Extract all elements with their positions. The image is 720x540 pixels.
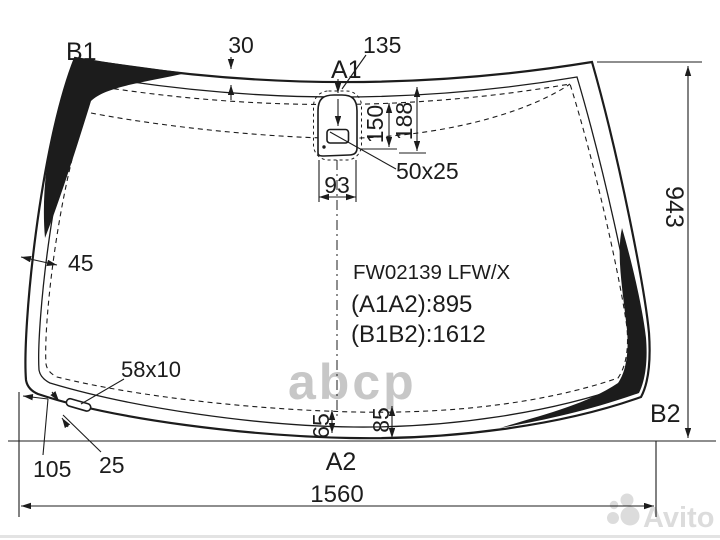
mount-dot [322, 145, 325, 148]
bottom-artifact-line [0, 535, 720, 538]
dim-50x25: 50x25 [396, 158, 459, 184]
dim-30: 30 [228, 32, 254, 58]
distance-a1a2: (A1A2):895 [351, 291, 472, 318]
dim-943: 943 [660, 186, 688, 228]
dim-65: 65 [308, 413, 334, 439]
dim-85: 85 [368, 407, 394, 433]
dim-1560: 1560 [310, 481, 363, 508]
dim-58x10: 58x10 [121, 357, 181, 382]
dim-150: 150 [362, 105, 388, 143]
dim-188: 188 [391, 102, 417, 140]
avito-watermark-text: Avito [643, 502, 714, 534]
ceramic-band-top-left [44, 58, 186, 238]
dim-135: 135 [363, 32, 401, 58]
label-b2: B2 [650, 400, 681, 428]
dim-93: 93 [324, 172, 350, 198]
label-a2: A2 [326, 448, 357, 476]
windshield-diagram: abcp Avito [0, 0, 720, 540]
abcp-watermark: abcp [288, 354, 417, 410]
dim-105: 105 [33, 456, 71, 482]
abcp-watermark-text: abcp [288, 354, 417, 410]
distance-b1b2: (B1B2):1612 [351, 321, 486, 348]
part-number: FW02139 LFW/X [353, 261, 511, 284]
label-b1: B1 [66, 38, 97, 66]
label-a1: A1 [331, 56, 362, 84]
windshield-spec-page: abcp Avito [0, 0, 720, 540]
avito-watermark: Avito [607, 494, 714, 535]
avito-logo-icon [607, 494, 640, 526]
dim-45: 45 [68, 250, 94, 276]
dim-25: 25 [99, 452, 125, 478]
ceramic-band-bottom-right [500, 228, 647, 428]
